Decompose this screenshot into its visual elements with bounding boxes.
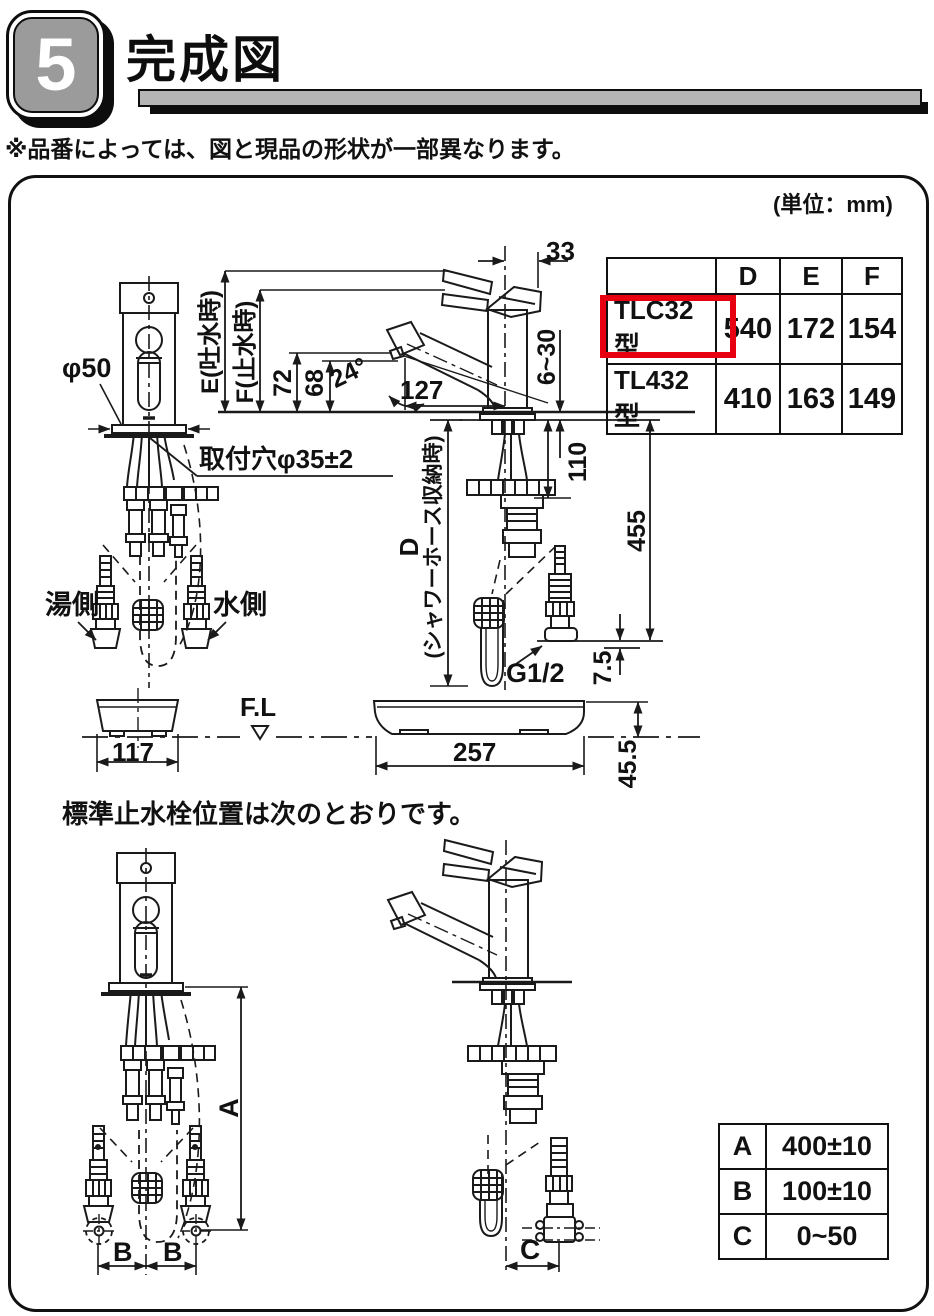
dim-127-label: 127: [400, 377, 443, 404]
position-table: A 400±10 B 100±10 C 0~50: [718, 1123, 889, 1260]
col-header-e: E: [780, 258, 842, 294]
model-name: TL432型: [607, 364, 716, 434]
hot-side-label: 湯側: [45, 591, 99, 619]
position-value: 400±10: [766, 1124, 888, 1169]
dim-c-label: C: [520, 1235, 540, 1264]
cold-side-label: 水側: [213, 591, 267, 619]
lower-front-view-drawing: [83, 848, 248, 1275]
position-value: 100±10: [766, 1169, 888, 1214]
dim-e-label: E(吐水時): [197, 262, 225, 422]
dim-b-left-label: B: [113, 1238, 133, 1266]
dim-68-label: 68: [301, 363, 329, 403]
dim-7-5-label: 7.5: [589, 644, 617, 692]
dim-6-30-label: 6~30: [533, 318, 561, 396]
dim-455-label: 455: [623, 503, 651, 559]
thread-g12-label: G1/2: [506, 659, 565, 687]
dim-117-label: 117: [112, 739, 154, 766]
table-row: B 100±10: [719, 1169, 888, 1214]
value-f: 149: [842, 364, 902, 434]
col-header-d: D: [716, 258, 780, 294]
phi50-label: φ50: [62, 354, 111, 382]
dim-33-label: 33: [546, 238, 575, 265]
position-key: A: [719, 1124, 766, 1169]
mount-hole-label: 取付穴φ35±2: [199, 446, 353, 473]
table-row: TL432型 410 163 149: [607, 364, 902, 434]
dim-72-label: 72: [269, 363, 297, 403]
dim-f-label: F(止水時): [232, 277, 260, 427]
table-row: A 400±10: [719, 1124, 888, 1169]
dim-a-label: A: [215, 1095, 243, 1121]
lower-side-view-drawing: [388, 840, 600, 1272]
manual-page: 5 完成図 ※品番によっては、図と現品の形状が一部異なります。 (単位：mm): [0, 0, 934, 1316]
dim-110-label: 110: [564, 434, 592, 490]
position-key: B: [719, 1169, 766, 1214]
technical-drawing: [0, 0, 934, 1316]
dim-257-label: 257: [453, 739, 496, 766]
dim-45-5-label: 45.5: [614, 733, 642, 795]
position-value: 0~50: [766, 1214, 888, 1259]
value-d: 410: [716, 364, 780, 434]
value-f: 154: [842, 294, 902, 364]
position-key: C: [719, 1214, 766, 1259]
dim-b-right-label: B: [163, 1238, 183, 1266]
table-row: C 0~50: [719, 1214, 888, 1259]
col-header-f: F: [842, 258, 902, 294]
floor-line-label: F.L: [240, 694, 276, 721]
model-highlight-box: [600, 295, 736, 358]
value-e: 163: [780, 364, 842, 434]
table-corner-cell: [607, 258, 716, 294]
dim-d-note-label: (シャワーホース収納時): [419, 422, 447, 672]
base-bowls-drawing: [82, 688, 700, 775]
value-e: 172: [780, 294, 842, 364]
lower-section-heading: 標準止水栓位置は次のとおりです。: [62, 801, 475, 828]
